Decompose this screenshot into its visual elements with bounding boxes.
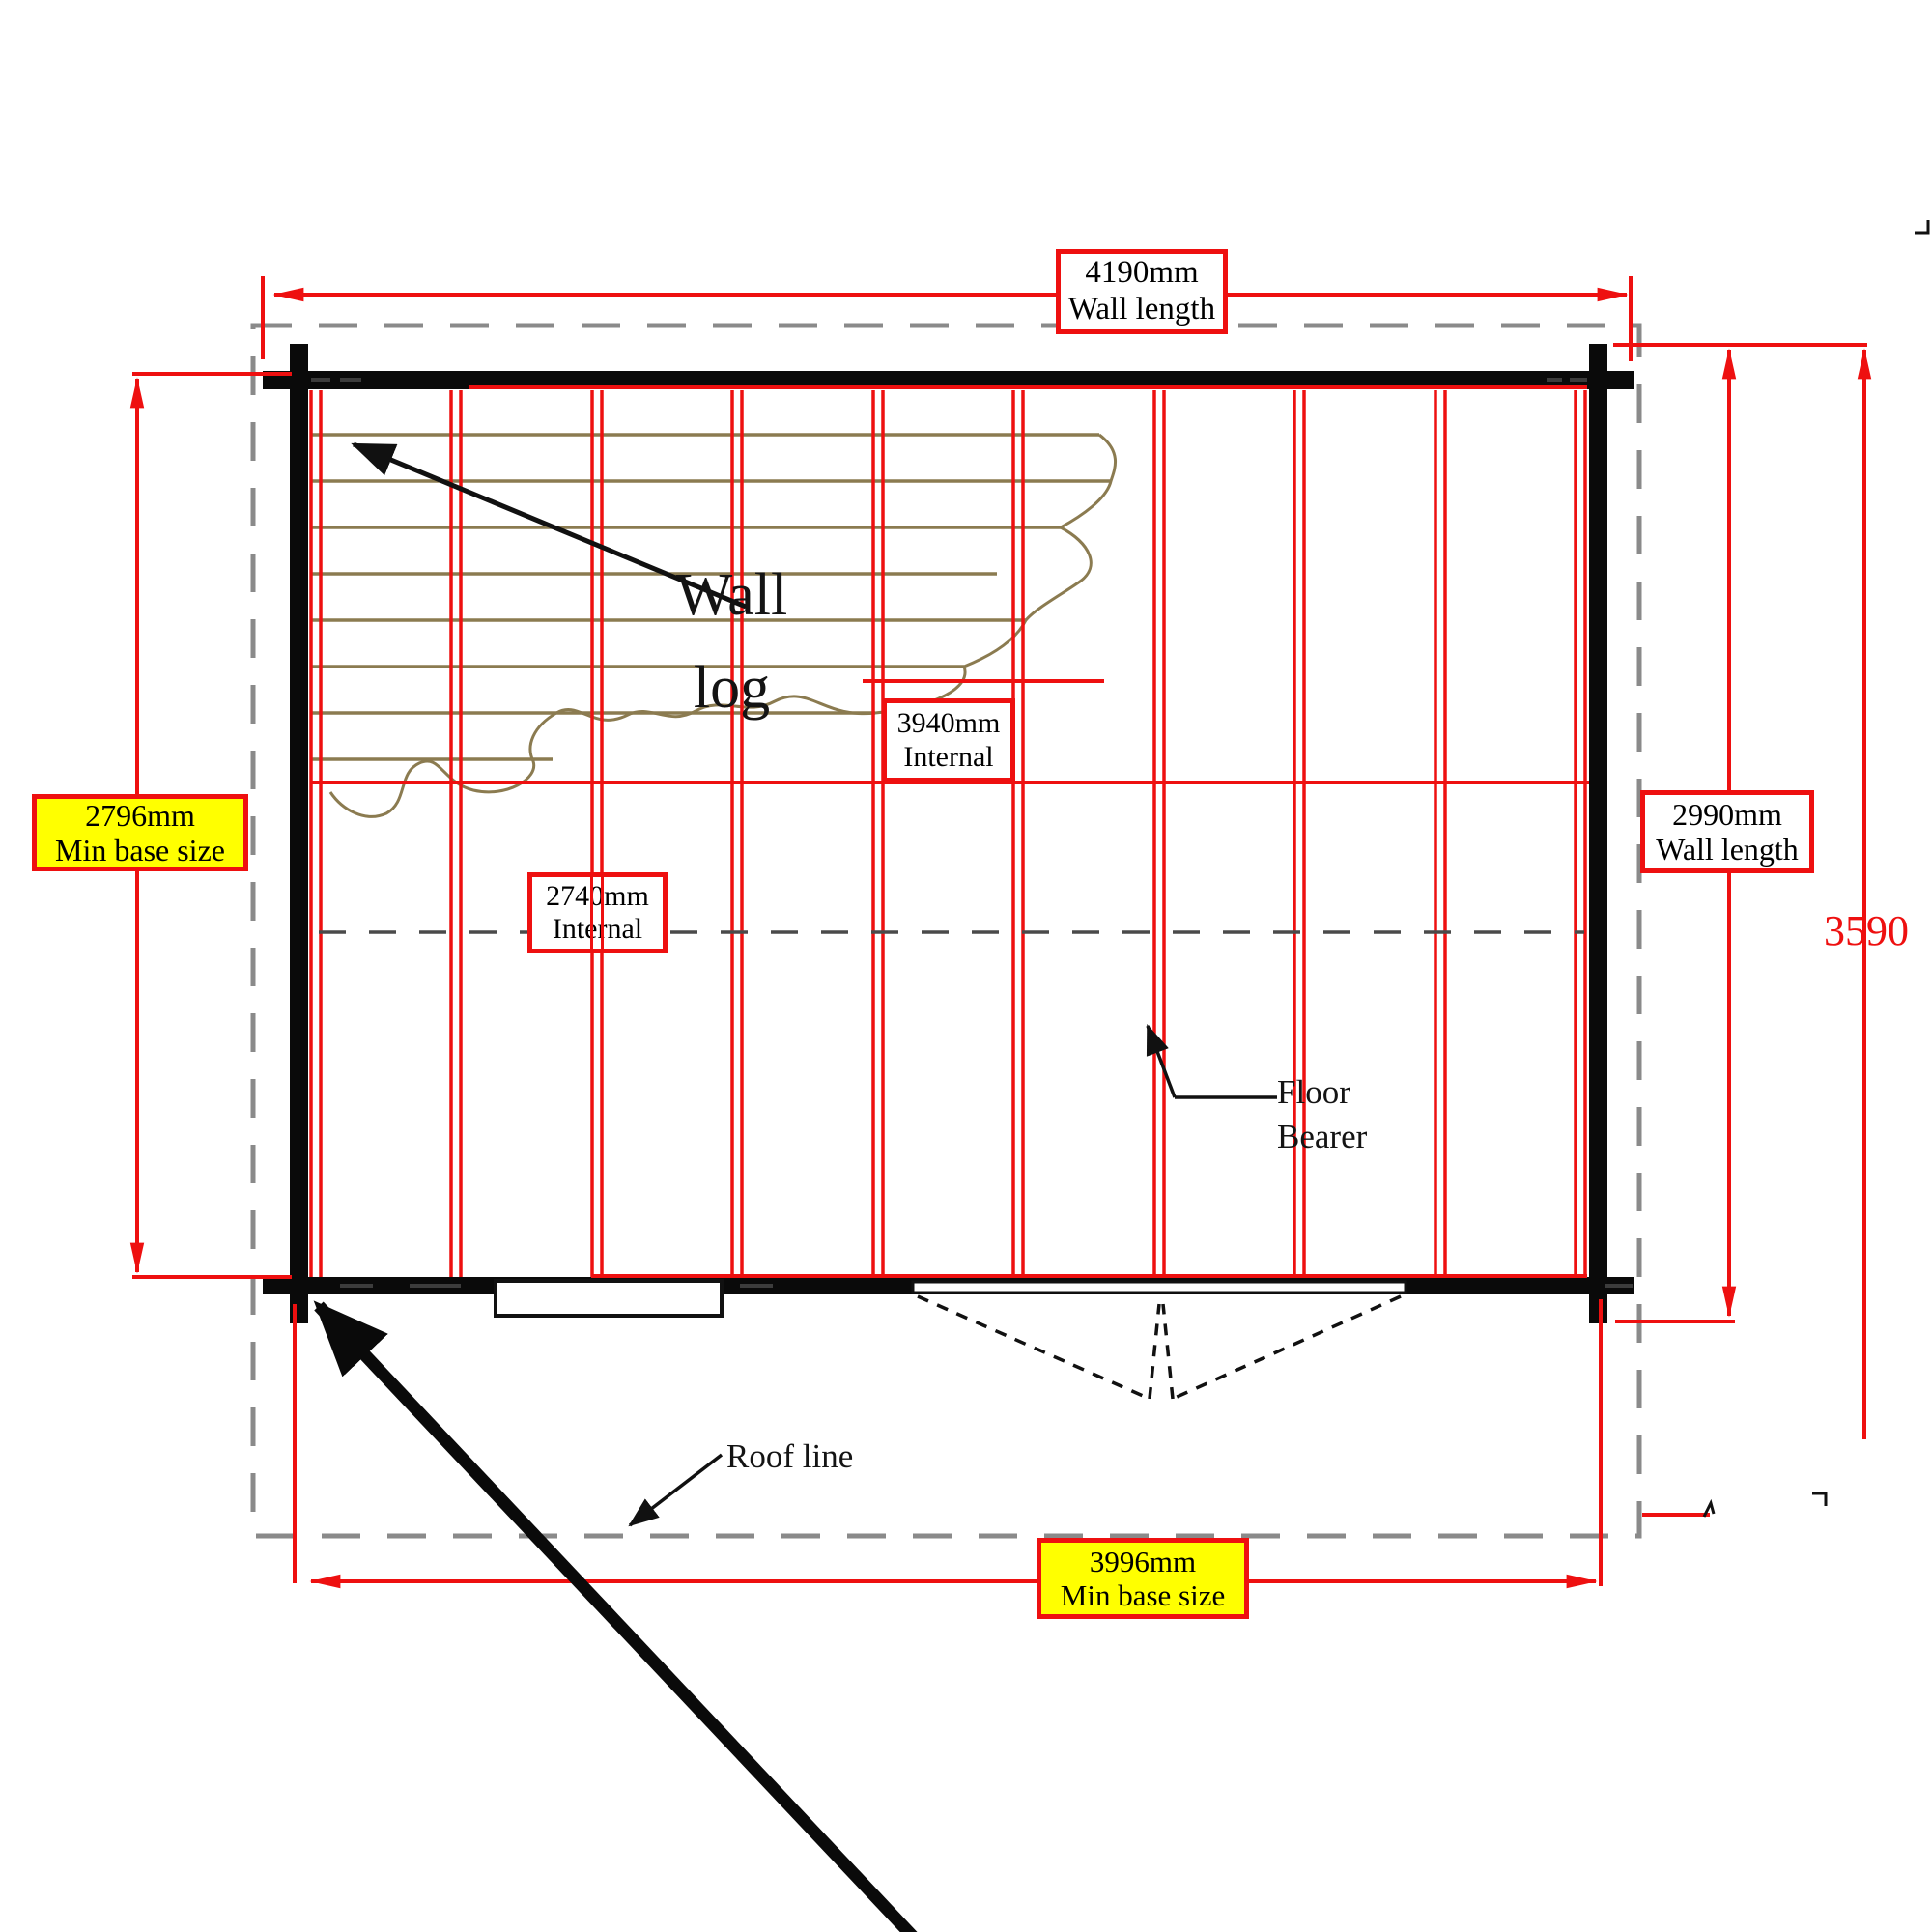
dim-caption: Internal: [903, 741, 993, 774]
wall-log-line2: log: [618, 641, 845, 734]
wall-log-line1: Wall: [618, 549, 845, 641]
dim-value: 3996mm: [1090, 1545, 1196, 1578]
floor-bearer-line2: Bearer: [1277, 1115, 1367, 1159]
double-door: [913, 1282, 1406, 1399]
roof-line-label: Roof line: [726, 1437, 853, 1476]
dim-caption: Wall length: [1068, 292, 1215, 328]
wall-log-label: Wall log: [618, 549, 845, 734]
dim-label-internal-width: 3940mm Internal: [882, 698, 1015, 782]
dim-caption: Wall length: [1656, 832, 1799, 867]
dim-label-wall-length-top: 4190mm Wall length: [1056, 249, 1228, 334]
floor-bearers: [311, 390, 1585, 1277]
window: [496, 1281, 722, 1316]
big-pointer-arrow: [319, 1306, 918, 1932]
log-cabin-floor-plan: 4190mm Wall length 2796mm Min base size …: [0, 0, 1932, 1932]
floor-bearer-line1: Floor: [1277, 1070, 1367, 1115]
dim-caption: Min base size: [1061, 1578, 1225, 1612]
floor-plan-drawing: [0, 0, 1932, 1932]
dim-label-wall-length-right: 2990mm Wall length: [1640, 790, 1814, 873]
dim-label-min-base-left: 2796mm Min base size: [32, 794, 248, 871]
right-wall: [1589, 344, 1607, 1323]
dim-value: 2796mm: [85, 798, 195, 833]
floor-bearer-overlay: [590, 872, 604, 953]
dim-label-overall-depth: 3590: [1824, 906, 1909, 955]
left-wall: [290, 344, 308, 1323]
floor-bearer-label: Floor Bearer: [1277, 1070, 1367, 1158]
roof-line-arrow: [630, 1455, 722, 1525]
dim-caption: Min base size: [55, 833, 225, 867]
dim-value: 3940mm: [897, 707, 1001, 740]
door-threshold: [913, 1282, 1406, 1293]
dim-value: 2990mm: [1672, 797, 1782, 832]
floor-bearer-arrow: [1148, 1026, 1175, 1097]
dim-value: 3590: [1824, 907, 1909, 954]
dim-label-min-base-bottom: 3996mm Min base size: [1037, 1538, 1249, 1619]
roof-line-text: Roof line: [726, 1437, 853, 1475]
dim-value: 4190mm: [1085, 255, 1198, 292]
